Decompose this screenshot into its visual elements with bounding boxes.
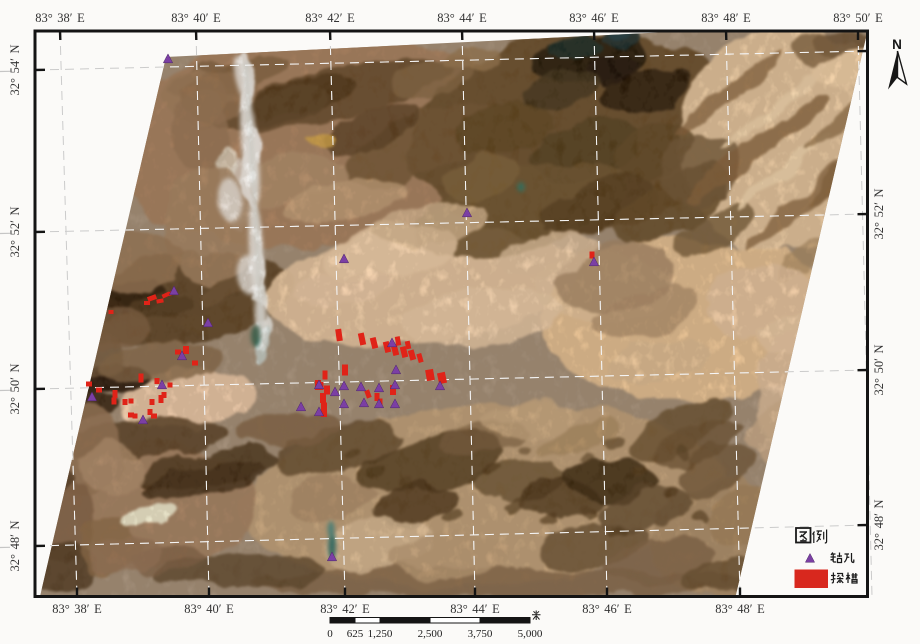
svg-text:5,000: 5,000 — [518, 628, 543, 640]
svg-text:83° 38′ E: 83° 38′ E — [52, 602, 102, 616]
svg-text:83° 44′ E: 83° 44′ E — [437, 11, 487, 25]
svg-text:32° 52′ N: 32° 52′ N — [8, 206, 22, 257]
svg-text:N: N — [892, 37, 902, 52]
svg-text:32° 48′ N: 32° 48′ N — [8, 520, 22, 571]
svg-text:32° 50′ N: 32° 50′ N — [8, 363, 22, 414]
svg-text:1,250: 1,250 — [368, 628, 393, 640]
svg-text:83° 40′ E: 83° 40′ E — [171, 11, 221, 25]
svg-text:83° 40′ E: 83° 40′ E — [184, 602, 234, 616]
svg-text:83° 38′ E: 83° 38′ E — [35, 11, 85, 25]
svg-text:32° 52′ N: 32° 52′ N — [872, 188, 886, 239]
svg-text:83° 46′ E: 83° 46′ E — [582, 602, 632, 616]
svg-text:0: 0 — [327, 628, 333, 640]
svg-text:83° 42′ E: 83° 42′ E — [320, 602, 370, 616]
svg-text:2,500: 2,500 — [418, 628, 443, 640]
svg-text:83° 48′ E: 83° 48′ E — [701, 11, 751, 25]
svg-text:83° 42′ E: 83° 42′ E — [305, 11, 355, 25]
svg-text:83° 48′ E: 83° 48′ E — [715, 602, 765, 616]
svg-text:3,750: 3,750 — [468, 628, 493, 640]
svg-text:32° 48′ N: 32° 48′ N — [872, 499, 886, 550]
svg-text:32° 50′ N: 32° 50′ N — [872, 344, 886, 395]
svg-text:32° 54′ N: 32° 54′ N — [8, 44, 22, 95]
svg-text:625: 625 — [347, 628, 364, 640]
svg-text:83° 44′ E: 83° 44′ E — [450, 602, 500, 616]
svg-text:83° 46′ E: 83° 46′ E — [569, 11, 619, 25]
svg-text:83° 50′ E: 83° 50′ E — [833, 11, 883, 25]
